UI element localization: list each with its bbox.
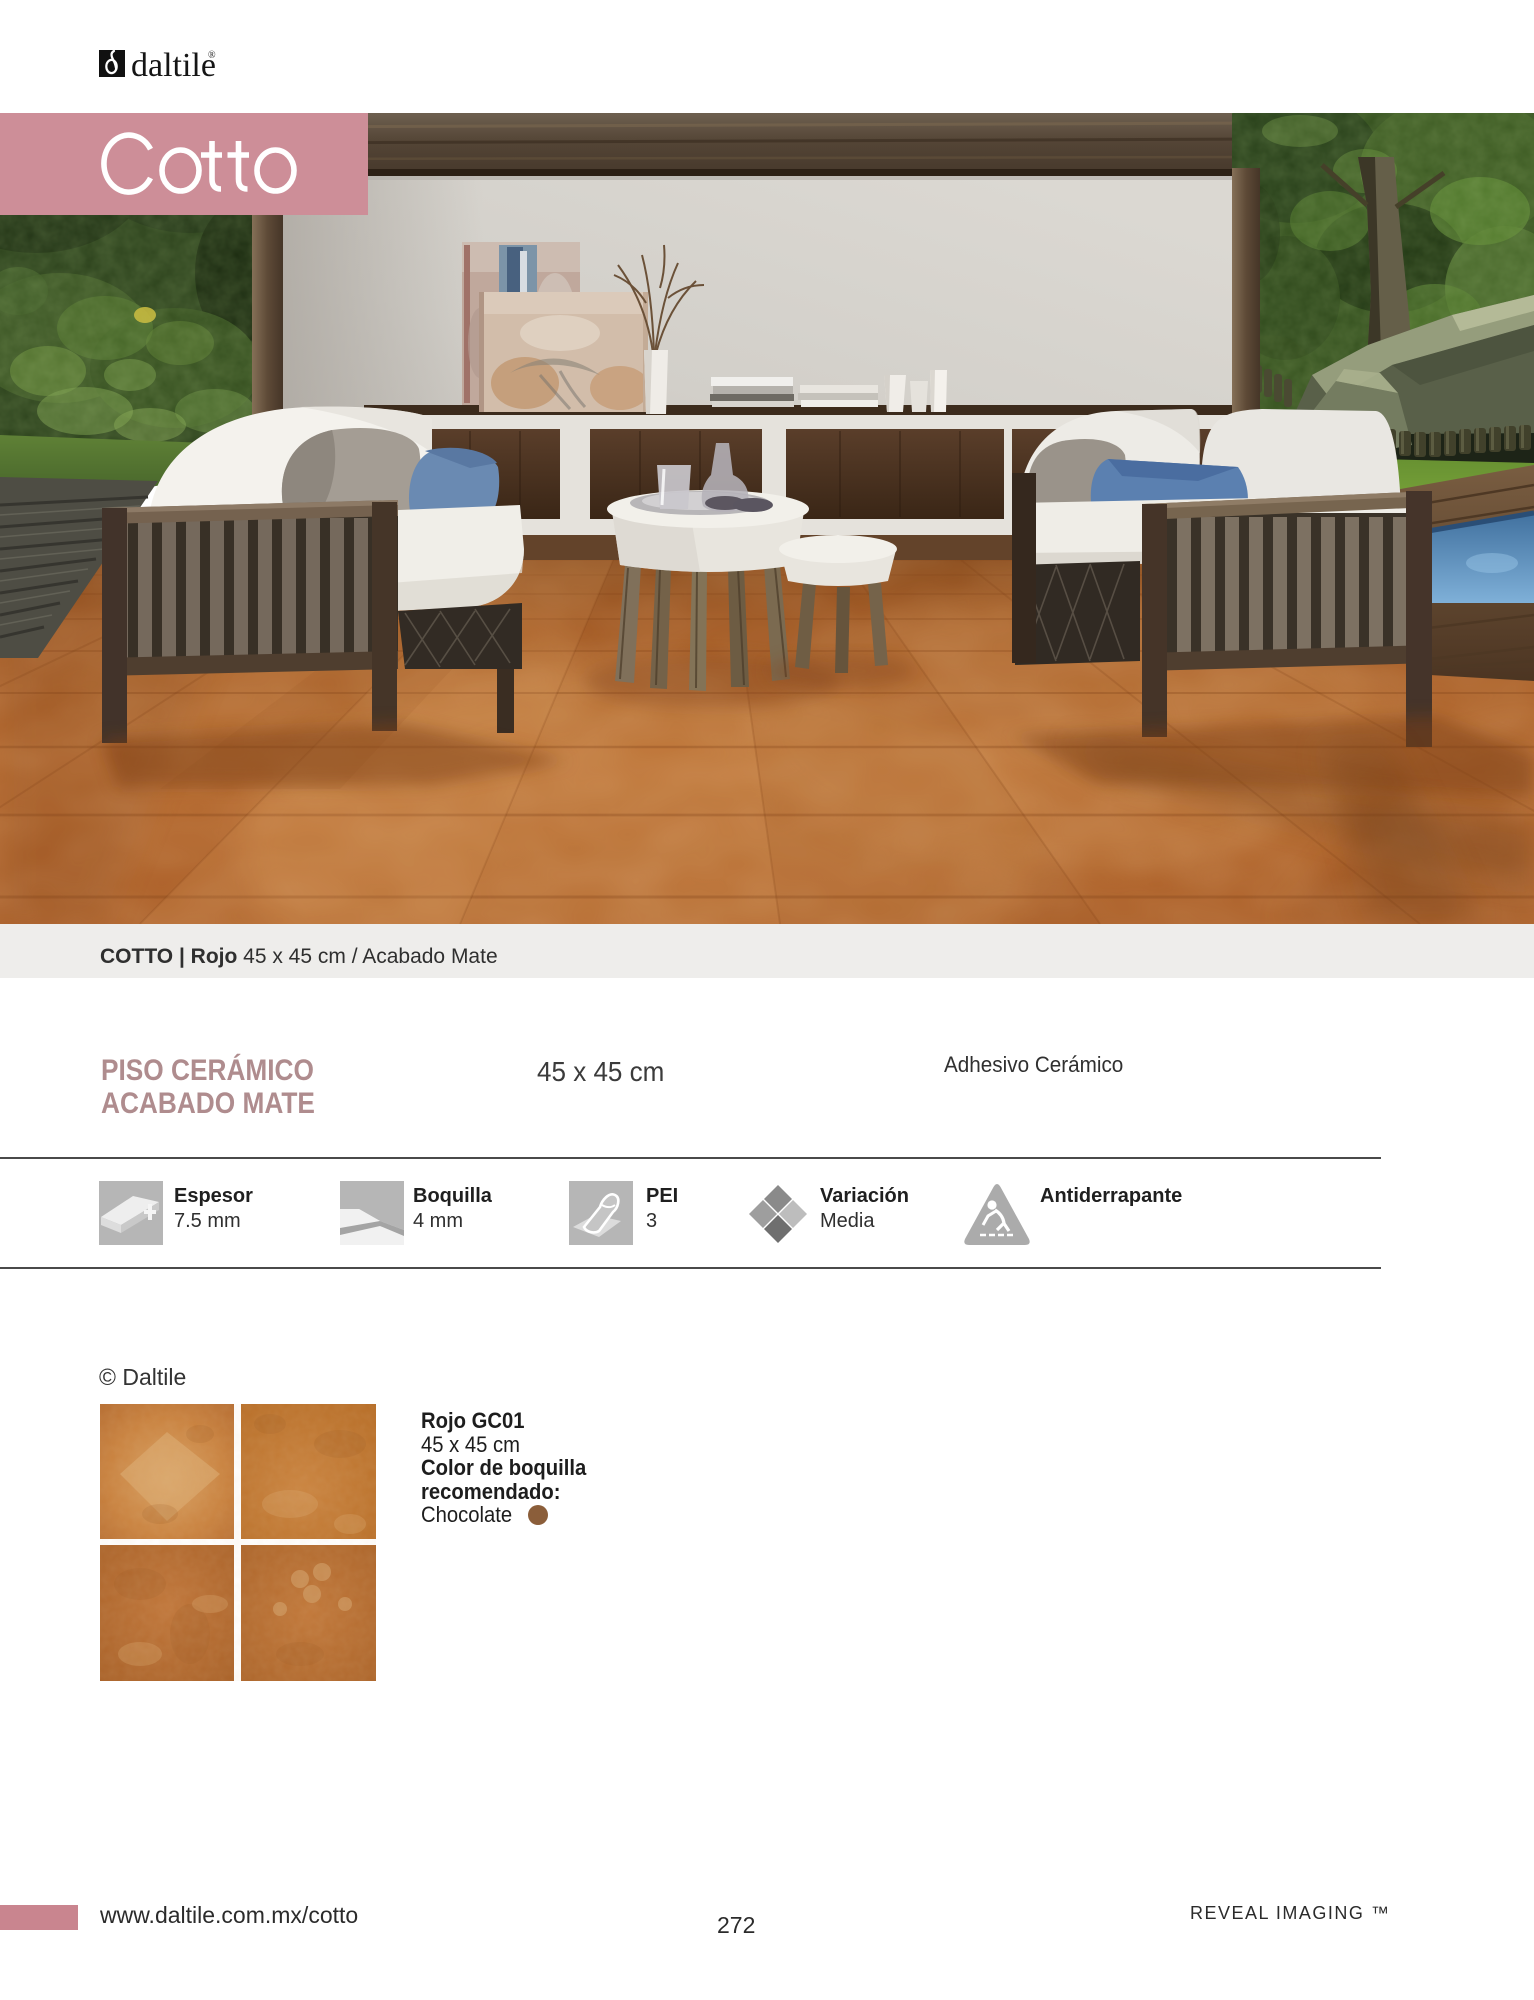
svg-text:daltile: daltile — [131, 48, 216, 82]
svg-text:®: ® — [208, 50, 216, 61]
